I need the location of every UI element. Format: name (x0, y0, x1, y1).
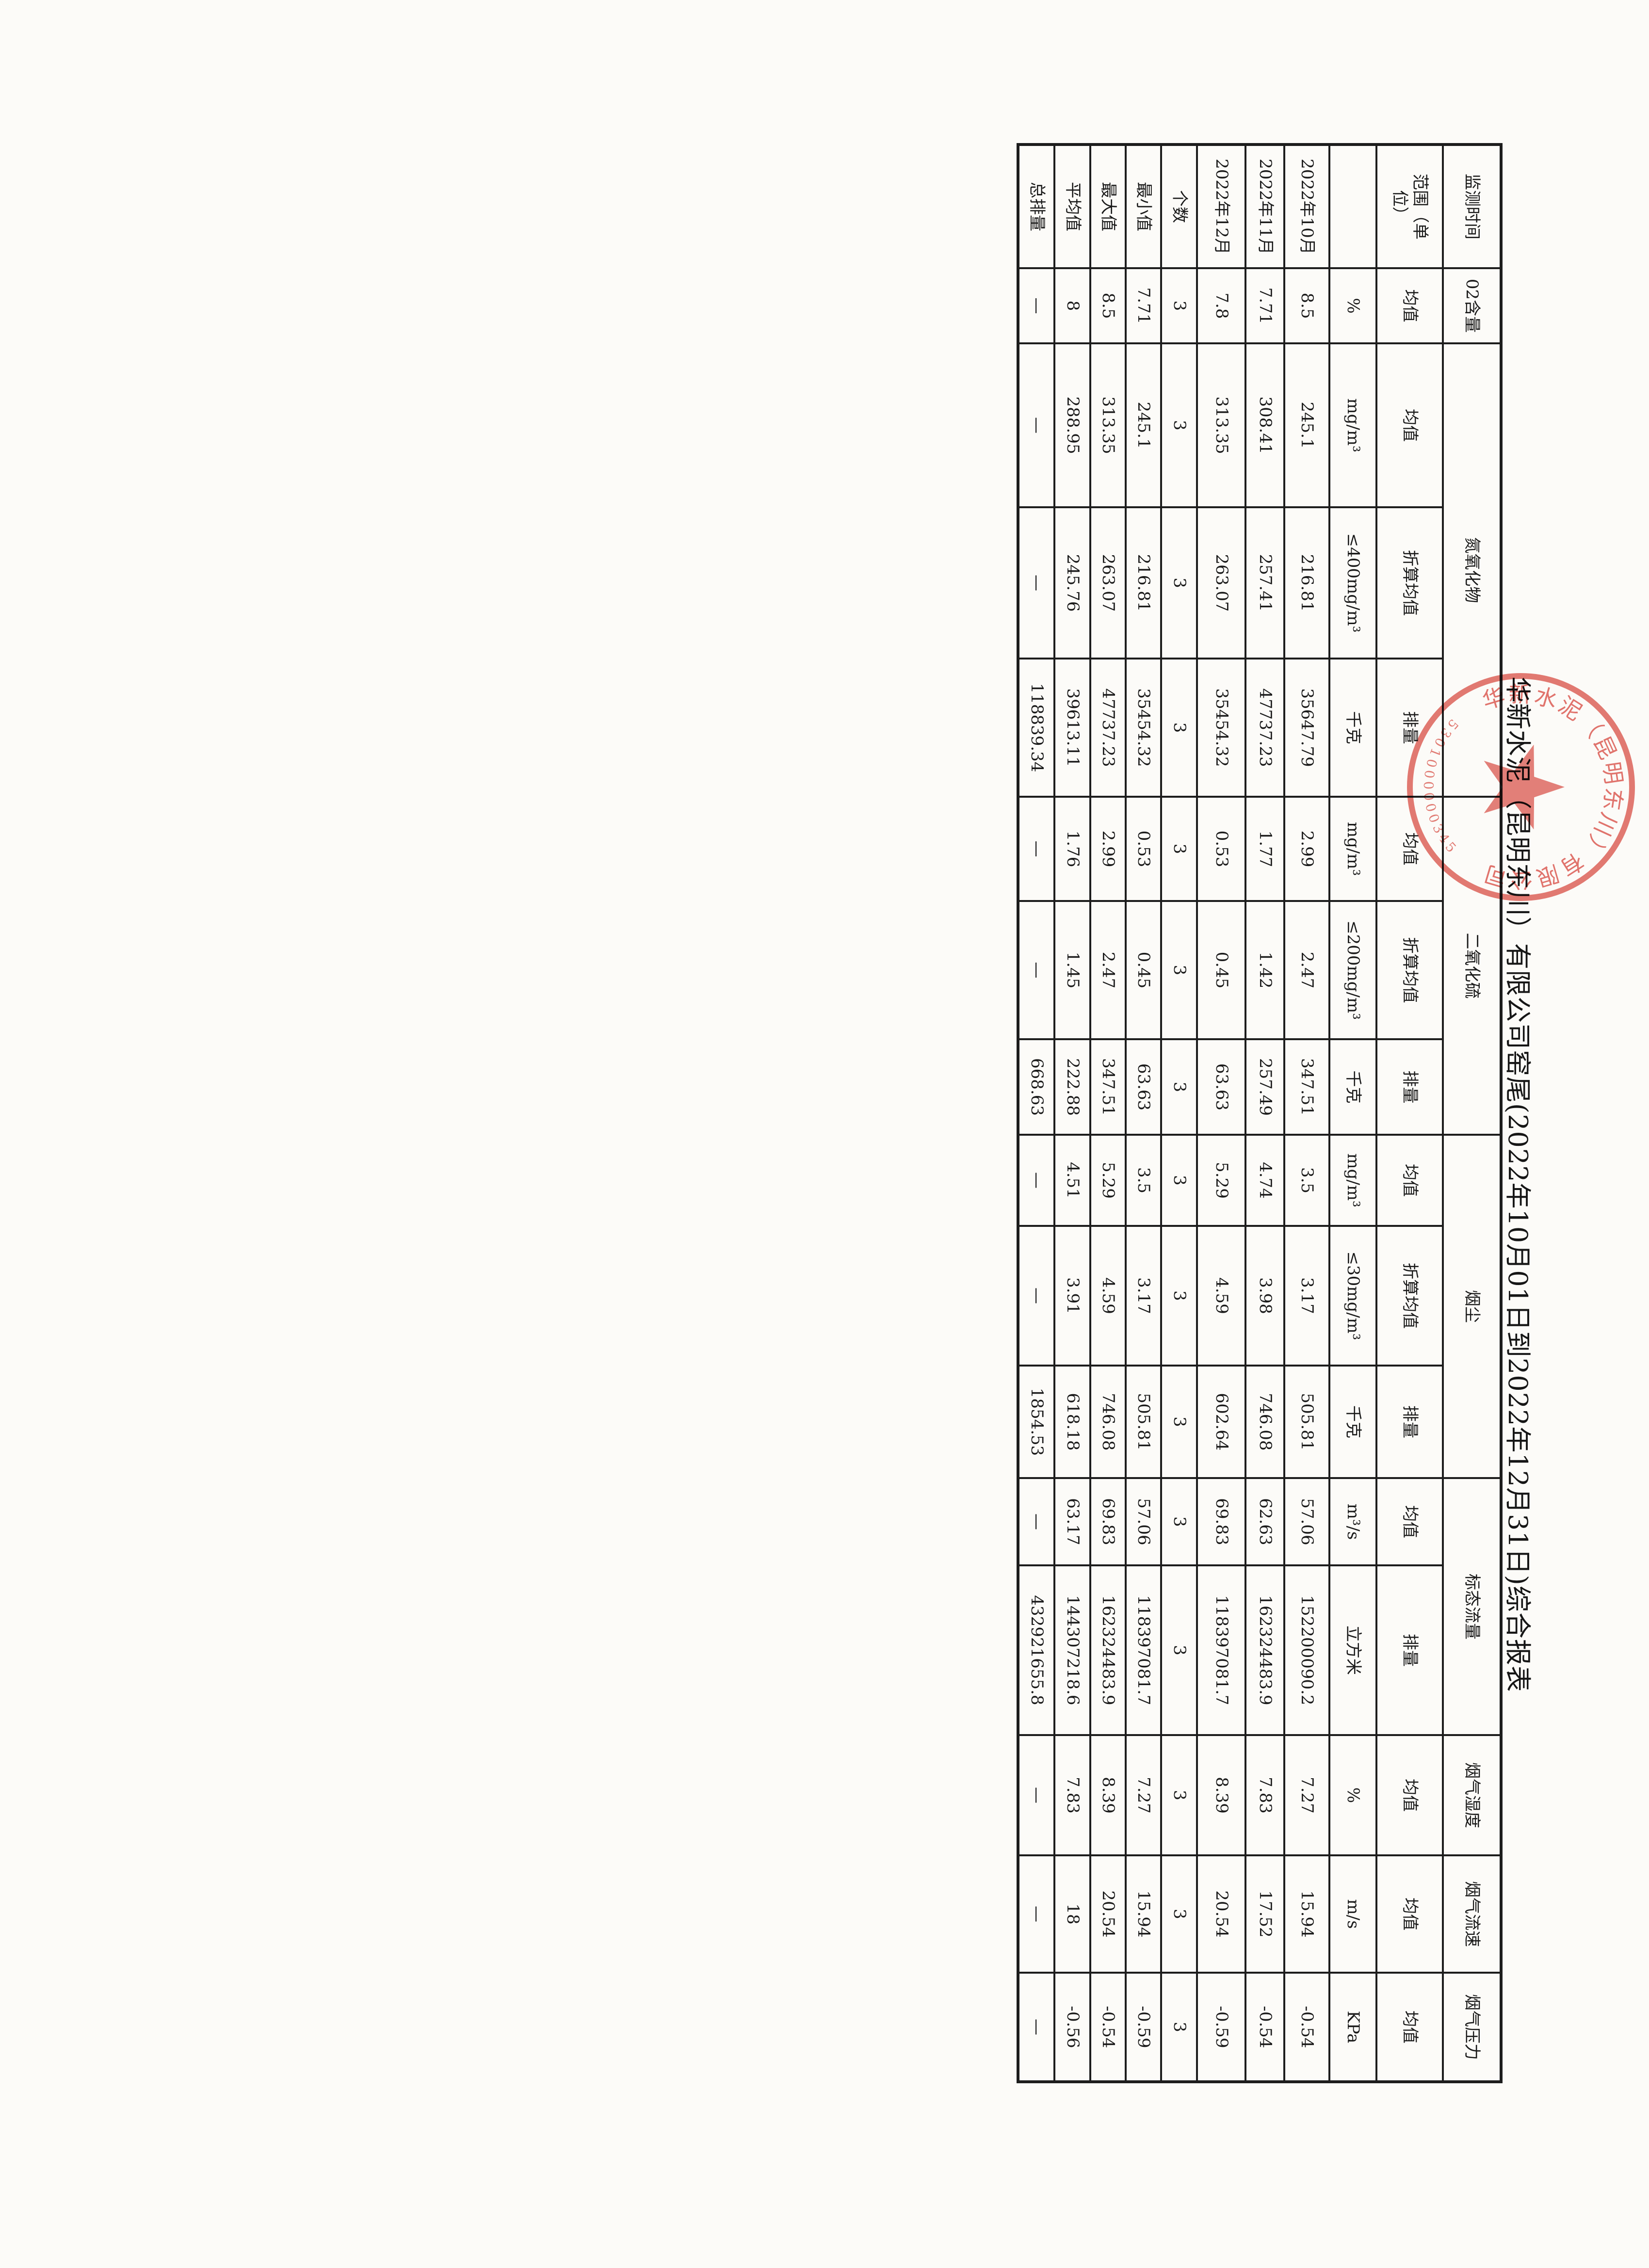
data-cell: 17.52 (1245, 1855, 1284, 1973)
data-cell: 216.81 (1284, 507, 1329, 659)
data-cell: 20.54 (1197, 1855, 1245, 1973)
data-cell: 118397081.7 (1197, 1565, 1245, 1735)
data-cell: 3 (1161, 901, 1197, 1039)
header-group-cell: 02含量 (1443, 268, 1501, 343)
unit-cell: mg/m³ (1329, 343, 1376, 507)
header-sub-cell: 均值 (1376, 1855, 1443, 1973)
data-cell: 35454.32 (1126, 659, 1161, 797)
data-cell: 35454.32 (1197, 659, 1245, 797)
data-cell: 7.27 (1126, 1735, 1161, 1855)
data-cell: 257.49 (1245, 1039, 1284, 1135)
stamp-serial-number: 5301000000345 (1421, 716, 1461, 858)
data-cell: — (1018, 507, 1054, 659)
data-cell: 5.29 (1197, 1135, 1245, 1226)
header-sub-cell: 折算均值 (1376, 901, 1443, 1039)
data-cell: 3.17 (1126, 1226, 1161, 1366)
unit-cell: m³/s (1329, 1478, 1376, 1565)
unit-cell: KPa (1329, 1973, 1376, 2082)
data-cell: 118397081.7 (1126, 1565, 1161, 1735)
unit-cell (1329, 145, 1376, 268)
data-cell: 222.88 (1054, 1039, 1090, 1135)
star-icon (1484, 745, 1565, 830)
data-cell: 63.63 (1126, 1039, 1161, 1135)
data-cell: 7.83 (1054, 1735, 1090, 1855)
report-table-header: 监测时间02含量氮氧化物二氧化硫烟尘标态流量烟气湿度烟气流速烟气压力范围（单位）… (1329, 145, 1501, 2082)
header-sub-cell: 折算均值 (1376, 507, 1443, 659)
data-cell: 8.5 (1284, 268, 1329, 343)
data-cell: 257.41 (1245, 507, 1284, 659)
row-label-cell: 最大值 (1090, 145, 1126, 268)
data-cell: 3 (1161, 1226, 1197, 1366)
data-cell: 618.18 (1054, 1366, 1090, 1478)
header-group-cell: 烟气压力 (1443, 1973, 1501, 2082)
data-cell: 18 (1054, 1855, 1090, 1973)
data-cell: 69.83 (1090, 1478, 1126, 1565)
header-sub-cell: 排量 (1376, 1039, 1443, 1135)
data-cell: 263.07 (1090, 507, 1126, 659)
unit-cell: ≤30mg/m³ (1329, 1226, 1376, 1366)
data-cell: 0.53 (1197, 797, 1245, 901)
data-cell: 162324483.9 (1090, 1565, 1126, 1735)
header-group-cell: 烟尘 (1443, 1135, 1501, 1478)
data-cell: 118839.34 (1018, 659, 1054, 797)
data-cell: — (1018, 797, 1054, 901)
report-table: 监测时间02含量氮氧化物二氧化硫烟尘标态流量烟气湿度烟气流速烟气压力范围（单位）… (1017, 143, 1503, 2083)
data-cell: 3.5 (1126, 1135, 1161, 1226)
header-sub-cell: 均值 (1376, 1973, 1443, 2082)
data-cell: 7.8 (1197, 268, 1245, 343)
table-row: 最大值8.5313.35263.0747737.232.992.47347.51… (1090, 145, 1126, 2082)
data-cell: 2.47 (1284, 901, 1329, 1039)
data-cell: — (1018, 1973, 1054, 2082)
table-row: 平均值8288.95245.7639613.111.761.45222.884.… (1054, 145, 1090, 2082)
data-cell: -0.54 (1245, 1973, 1284, 2082)
data-cell: 162324483.9 (1245, 1565, 1284, 1735)
data-cell: 0.53 (1126, 797, 1161, 901)
data-cell: 2.47 (1090, 901, 1126, 1039)
data-cell: 1854.53 (1018, 1366, 1054, 1478)
data-cell: 63.63 (1197, 1039, 1245, 1135)
data-cell: 3 (1161, 1735, 1197, 1855)
table-row: 2022年11月7.71308.41257.4147737.231.771.42… (1245, 145, 1284, 2082)
unit-cell: 千克 (1329, 659, 1376, 797)
header-sub-cell: 均值 (1376, 268, 1443, 343)
data-cell: 668.63 (1018, 1039, 1054, 1135)
table-row: 2022年12月7.8313.35263.0735454.320.530.456… (1197, 145, 1245, 2082)
table-row: 最小值7.71245.1216.8135454.320.530.4563.633… (1126, 145, 1161, 2082)
data-cell: — (1018, 1226, 1054, 1366)
data-cell: — (1018, 1855, 1054, 1973)
data-cell: 1.42 (1245, 901, 1284, 1039)
header-sub-cell: 均值 (1376, 343, 1443, 507)
unit-cell: % (1329, 1735, 1376, 1855)
unit-cell: ≤200mg/m³ (1329, 901, 1376, 1039)
data-cell: 152200090.2 (1284, 1565, 1329, 1735)
table-row: 总排量———118839.34——668.63——1854.53—4329216… (1018, 145, 1054, 2082)
data-cell: 313.35 (1197, 343, 1245, 507)
data-cell: 7.71 (1126, 268, 1161, 343)
data-cell: 3 (1161, 659, 1197, 797)
table-row: 个数333333333333333 (1161, 145, 1197, 2082)
unit-cell: mg/m³ (1329, 797, 1376, 901)
unit-cell: m/s (1329, 1855, 1376, 1973)
data-cell: 288.95 (1054, 343, 1090, 507)
data-cell: 0.45 (1126, 901, 1161, 1039)
data-cell: 3.98 (1245, 1226, 1284, 1366)
row-label-cell: 2022年10月 (1284, 145, 1329, 268)
unit-cell: ≤400mg/m³ (1329, 507, 1376, 659)
data-cell: 3 (1161, 1366, 1197, 1478)
data-cell: 39613.11 (1054, 659, 1090, 797)
data-cell: 47737.23 (1245, 659, 1284, 797)
header-sub-cell: 排量 (1376, 1565, 1443, 1735)
report-table-body: 2022年10月8.5245.1216.8135647.792.992.4734… (1018, 145, 1329, 2082)
data-cell: -0.59 (1126, 1973, 1161, 2082)
data-cell: 3.5 (1284, 1135, 1329, 1226)
data-cell: 347.51 (1090, 1039, 1126, 1135)
data-cell: 1.76 (1054, 797, 1090, 901)
header-group-cell: 标态流量 (1443, 1478, 1501, 1735)
data-cell: 8.39 (1197, 1735, 1245, 1855)
data-cell: 62.63 (1245, 1478, 1284, 1565)
data-cell: 3 (1161, 507, 1197, 659)
data-cell: 3 (1161, 268, 1197, 343)
header-sub-cell: 均值 (1376, 1478, 1443, 1565)
data-cell: — (1018, 268, 1054, 343)
data-cell: 3 (1161, 797, 1197, 901)
data-cell: 1.77 (1245, 797, 1284, 901)
data-cell: 15.94 (1284, 1855, 1329, 1973)
data-cell: -0.56 (1054, 1973, 1090, 2082)
data-cell: 8.5 (1090, 268, 1126, 343)
data-cell: 3 (1161, 1135, 1197, 1226)
header-sub-cell: 折算均值 (1376, 1226, 1443, 1366)
data-cell: 4.59 (1090, 1226, 1126, 1366)
unit-cell: 千克 (1329, 1366, 1376, 1478)
data-cell: 3 (1161, 1478, 1197, 1565)
unit-cell: 千克 (1329, 1039, 1376, 1135)
data-cell: 144307218.6 (1054, 1565, 1090, 1735)
data-cell: — (1018, 1478, 1054, 1565)
data-cell: 7.83 (1245, 1735, 1284, 1855)
data-cell: 3.17 (1284, 1226, 1329, 1366)
data-cell: 57.06 (1126, 1478, 1161, 1565)
header-sub-cell: 排量 (1376, 1366, 1443, 1478)
data-cell: 2.99 (1284, 797, 1329, 901)
data-cell: 308.41 (1245, 343, 1284, 507)
data-cell: 3 (1161, 1973, 1197, 2082)
data-cell: — (1018, 1735, 1054, 1855)
company-stamp: 华新水泥（昆明东川）有限公司 5301000000345 (1400, 666, 1642, 908)
data-cell: 5.29 (1090, 1135, 1126, 1226)
data-cell: 505.81 (1284, 1366, 1329, 1478)
data-cell: 7.27 (1284, 1735, 1329, 1855)
data-cell: — (1018, 1135, 1054, 1226)
data-cell: -0.54 (1090, 1973, 1126, 2082)
data-cell: 0.45 (1197, 901, 1245, 1039)
scanned-page: 华新水泥（昆明东川）有限公司窑尾(2022年10月01日到2022年12月31日… (0, 0, 1649, 2268)
data-cell: 347.51 (1284, 1039, 1329, 1135)
row-label-cell: 个数 (1161, 145, 1197, 268)
data-cell: — (1018, 343, 1054, 507)
data-cell: 216.81 (1126, 507, 1161, 659)
data-cell: 8 (1054, 268, 1090, 343)
data-cell: 4.51 (1054, 1135, 1090, 1226)
data-cell: 746.08 (1245, 1366, 1284, 1478)
data-cell: 15.94 (1126, 1855, 1161, 1973)
data-cell: — (1018, 901, 1054, 1039)
header-sub-cell: 范围（单位） (1376, 145, 1443, 268)
table-row: 2022年10月8.5245.1216.8135647.792.992.4734… (1284, 145, 1329, 2082)
data-cell: 3 (1161, 1565, 1197, 1735)
data-cell: 3 (1161, 1855, 1197, 1973)
data-cell: 313.35 (1090, 343, 1126, 507)
rotated-sheet: 华新水泥（昆明东川）有限公司窑尾(2022年10月01日到2022年12月31日… (0, 0, 1649, 2268)
data-cell: 263.07 (1197, 507, 1245, 659)
data-cell: 3.91 (1054, 1226, 1090, 1366)
data-cell: 47737.23 (1090, 659, 1126, 797)
data-cell: 432921655.8 (1018, 1565, 1054, 1735)
data-cell: 245.1 (1126, 343, 1161, 507)
data-cell: -0.59 (1197, 1973, 1245, 2082)
unit-cell: % (1329, 268, 1376, 343)
header-group-cell: 监测时间 (1443, 145, 1501, 268)
data-cell: 63.17 (1054, 1478, 1090, 1565)
header-sub-cell: 均值 (1376, 1735, 1443, 1855)
data-cell: 2.99 (1090, 797, 1126, 901)
header-group-cell: 烟气湿度 (1443, 1735, 1501, 1855)
data-cell: 245.76 (1054, 507, 1090, 659)
header-group-cell: 烟气流速 (1443, 1855, 1501, 1973)
data-cell: 3 (1161, 1039, 1197, 1135)
header-sub-cell: 均值 (1376, 1135, 1443, 1226)
data-cell: 20.54 (1090, 1855, 1126, 1973)
unit-cell: 立方米 (1329, 1565, 1376, 1735)
data-cell: 4.74 (1245, 1135, 1284, 1226)
data-cell: 602.64 (1197, 1366, 1245, 1478)
data-cell: 8.39 (1090, 1735, 1126, 1855)
row-label-cell: 平均值 (1054, 145, 1090, 268)
data-cell: 1.45 (1054, 901, 1090, 1039)
data-cell: 69.83 (1197, 1478, 1245, 1565)
data-cell: 3 (1161, 343, 1197, 507)
unit-cell: mg/m³ (1329, 1135, 1376, 1226)
data-cell: 245.1 (1284, 343, 1329, 507)
data-cell: 4.59 (1197, 1226, 1245, 1366)
data-cell: 746.08 (1090, 1366, 1126, 1478)
data-cell: 35647.79 (1284, 659, 1329, 797)
data-cell: 7.71 (1245, 268, 1284, 343)
row-label-cell: 2022年11月 (1245, 145, 1284, 268)
data-cell: -0.54 (1284, 1973, 1329, 2082)
data-cell: 505.81 (1126, 1366, 1161, 1478)
row-label-cell: 最小值 (1126, 145, 1161, 268)
row-label-cell: 2022年12月 (1197, 145, 1245, 268)
data-cell: 57.06 (1284, 1478, 1329, 1565)
row-label-cell: 总排量 (1018, 145, 1054, 268)
